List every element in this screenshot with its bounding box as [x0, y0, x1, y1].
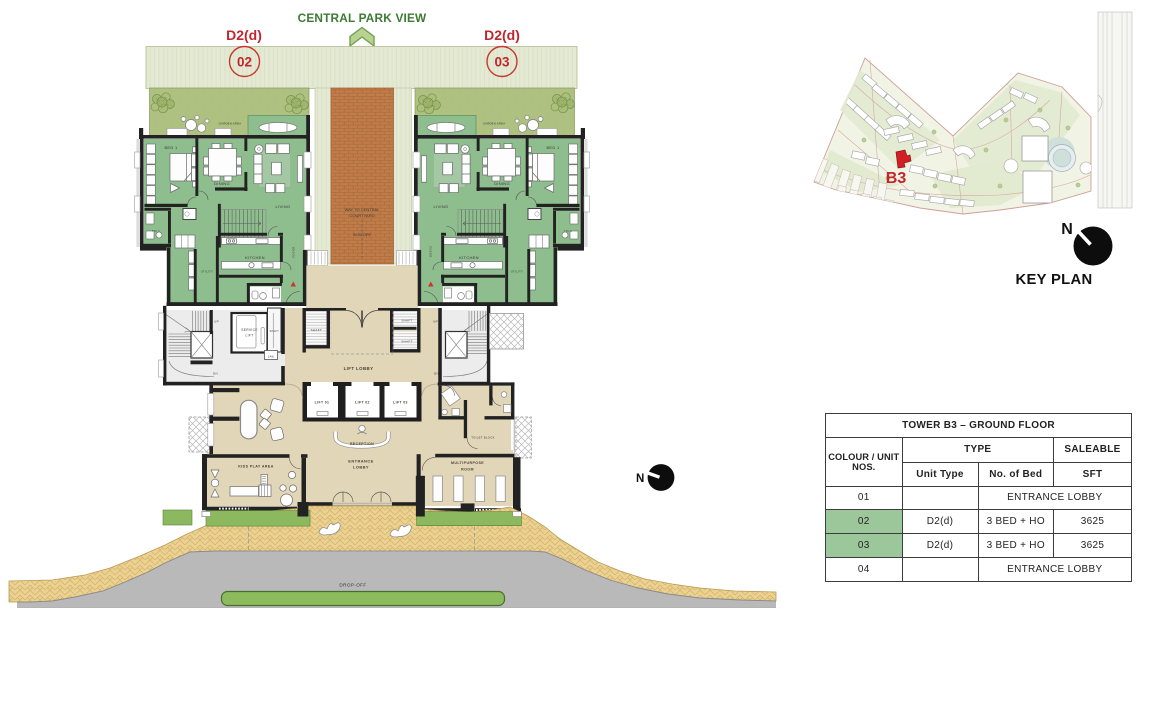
svg-text:LIFT 03: LIFT 03 — [393, 401, 408, 405]
svg-text:UTILITY: UTILITY — [511, 270, 524, 274]
svg-text:SAW: SAW — [268, 356, 275, 359]
svg-text:B3: B3 — [886, 170, 907, 187]
svg-text:TOI 1: TOI 1 — [152, 229, 160, 233]
svg-text:D2(d): D2(d) — [226, 27, 262, 43]
svg-text:UTILITY: UTILITY — [201, 270, 214, 274]
svg-text:KIDS PLAY AREA: KIDS PLAY AREA — [238, 465, 273, 469]
svg-text:D2(d): D2(d) — [484, 27, 520, 43]
svg-text:TOILET BLOCK: TOILET BLOCK — [471, 436, 495, 440]
svg-text:LIVING: LIVING — [434, 204, 449, 209]
svg-text:TOI 1: TOI 1 — [564, 229, 572, 233]
svg-text:LIFT LOBBY: LIFT LOBBY — [344, 366, 374, 371]
svg-text:MULTIPURPOSE: MULTIPURPOSE — [451, 461, 484, 465]
svg-text:DN: DN — [213, 372, 218, 376]
svg-text:SERVICE: SERVICE — [241, 328, 258, 332]
svg-text:03: 03 — [494, 55, 510, 70]
svg-text:DROP-OFF: DROP-OFF — [339, 583, 366, 588]
svg-text:DINING: DINING — [214, 181, 230, 186]
svg-text:SHAFT: SHAFT — [401, 319, 412, 323]
svg-text:ENTRANCE: ENTRANCE — [348, 459, 373, 464]
svg-text:LIFT: LIFT — [246, 334, 254, 338]
svg-text:SHAFT: SHAFT — [401, 340, 412, 344]
svg-text:LIFT 02: LIFT 02 — [355, 401, 370, 405]
svg-text:BED 1: BED 1 — [164, 145, 178, 150]
svg-text:ROOM: ROOM — [461, 468, 474, 472]
svg-text:02: 02 — [237, 55, 252, 70]
svg-text:RECEPTION: RECEPTION — [350, 442, 374, 446]
svg-text:LIFT 01: LIFT 01 — [315, 401, 330, 405]
svg-text:SHAFT: SHAFT — [270, 330, 280, 333]
svg-text:CENTRAL PARK VIEW: CENTRAL PARK VIEW — [298, 11, 427, 25]
svg-text:FOYER: FOYER — [429, 246, 433, 257]
svg-text:SHAFT: SHAFT — [311, 328, 322, 332]
svg-text:KEY PLAN: KEY PLAN — [1016, 272, 1093, 288]
svg-text:DINING: DINING — [494, 181, 510, 186]
svg-text:FOYER: FOYER — [292, 246, 296, 257]
svg-text:GARDEN AREA: GARDEN AREA — [483, 122, 505, 126]
svg-text:GARDEN AREA: GARDEN AREA — [219, 122, 241, 126]
svg-text:LIVING: LIVING — [276, 204, 291, 209]
svg-text:N: N — [636, 473, 644, 485]
svg-text:UP: UP — [214, 320, 219, 324]
svg-text:KITCHEN: KITCHEN — [459, 255, 479, 260]
svg-text:DN: DN — [434, 372, 439, 376]
svg-text:WAY TO CENTRAL: WAY TO CENTRAL — [345, 207, 381, 212]
svg-text:COURTYARD: COURTYARD — [350, 213, 375, 218]
svg-text:N: N — [1061, 221, 1073, 238]
svg-text:LOBBY: LOBBY — [353, 465, 369, 470]
svg-text:KITCHEN: KITCHEN — [245, 255, 265, 260]
svg-text:UP: UP — [433, 320, 438, 324]
svg-text:BED 1: BED 1 — [546, 145, 560, 150]
